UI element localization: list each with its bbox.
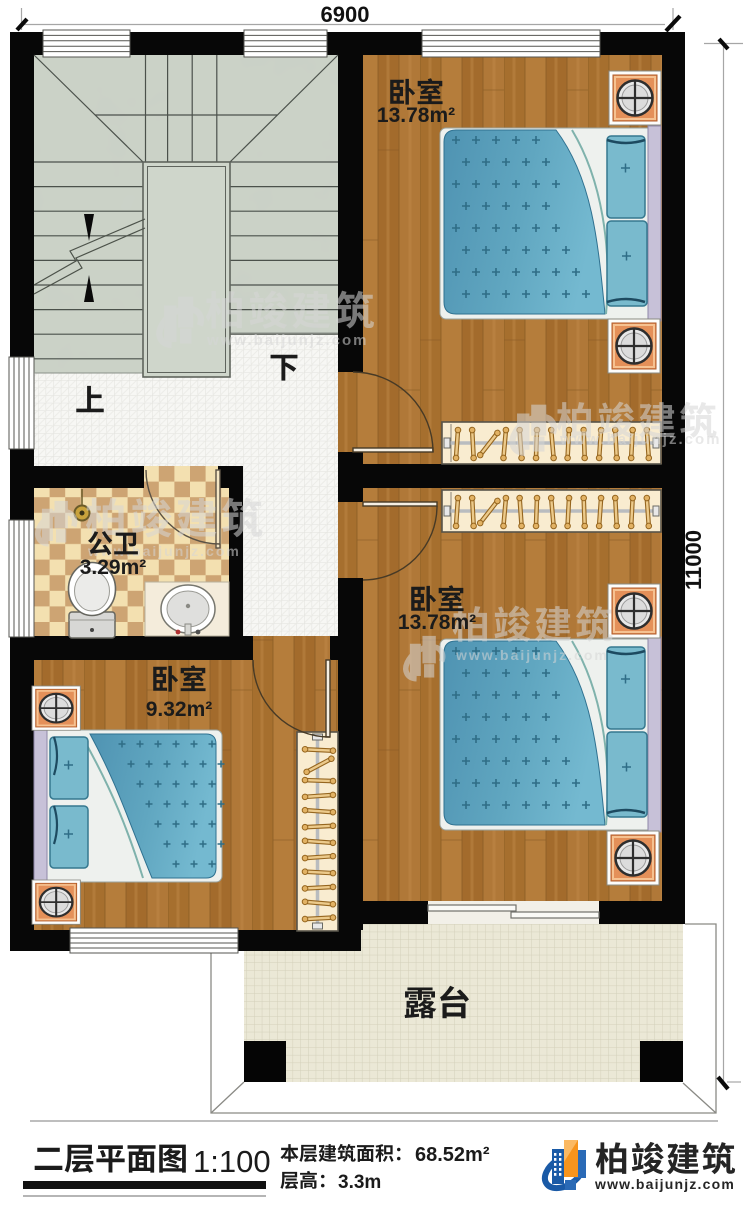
- svg-text:1:100: 1:100: [193, 1144, 271, 1179]
- svg-text:6900: 6900: [321, 2, 370, 27]
- svg-text:11000: 11000: [681, 530, 706, 590]
- svg-text:www.baijunjz.com: www.baijunjz.com: [206, 332, 368, 349]
- svg-text:68.52m²: 68.52m²: [415, 1144, 490, 1166]
- svg-text:13.78m²: 13.78m²: [377, 104, 455, 127]
- svg-text:www.baijunjz.com: www.baijunjz.com: [594, 1176, 735, 1192]
- svg-text:13.78m²: 13.78m²: [398, 611, 476, 634]
- svg-text:3.3m: 3.3m: [338, 1172, 381, 1193]
- svg-text:9.32m²: 9.32m²: [146, 698, 213, 721]
- svg-text:www.baijunjz.com: www.baijunjz.com: [455, 647, 609, 663]
- svg-text:3.29m²: 3.29m²: [80, 556, 147, 579]
- svg-text:www.baijunjz.com: www.baijunjz.com: [559, 431, 721, 448]
